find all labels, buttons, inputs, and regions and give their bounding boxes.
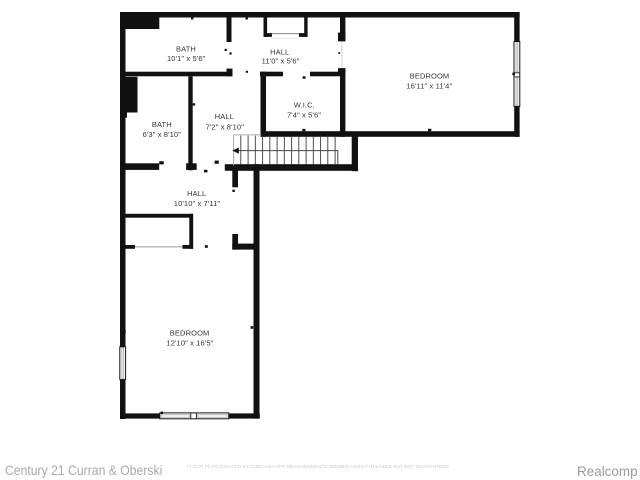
svg-text:10'10" x 7'11": 10'10" x 7'11" (174, 199, 221, 208)
svg-text:BATH: BATH (176, 44, 196, 53)
svg-text:BATH: BATH (152, 120, 172, 129)
svg-text:11'0" x 5'6": 11'0" x 5'6" (262, 56, 300, 65)
svg-text:HALL: HALL (215, 112, 234, 121)
svg-text:HALL: HALL (270, 48, 289, 57)
svg-text:W.I.C.: W.I.C. (294, 101, 315, 110)
svg-text:16'11" x 11'4": 16'11" x 11'4" (406, 81, 452, 90)
svg-text:FLOOR PLAN CREATED BY CUBICASA: FLOOR PLAN CREATED BY CUBICASA APP. MEAS… (187, 464, 450, 469)
svg-text:7'4" x 5'6": 7'4" x 5'6" (287, 110, 321, 119)
svg-text:7'2" x 8'10": 7'2" x 8'10" (206, 123, 245, 132)
svg-text:Realcomp: Realcomp (577, 464, 638, 479)
svg-text:6'3" x 8'10": 6'3" x 8'10" (143, 130, 182, 139)
svg-text:12'10" x 16'5": 12'10" x 16'5" (166, 338, 213, 347)
svg-text:Century 21 Curran & Oberski: Century 21 Curran & Oberski (5, 463, 162, 478)
svg-text:10'1" x 5'6": 10'1" x 5'6" (167, 54, 206, 63)
svg-text:BEDROOM: BEDROOM (410, 72, 450, 81)
svg-text:BEDROOM: BEDROOM (170, 329, 210, 338)
svg-text:HALL: HALL (187, 189, 206, 198)
